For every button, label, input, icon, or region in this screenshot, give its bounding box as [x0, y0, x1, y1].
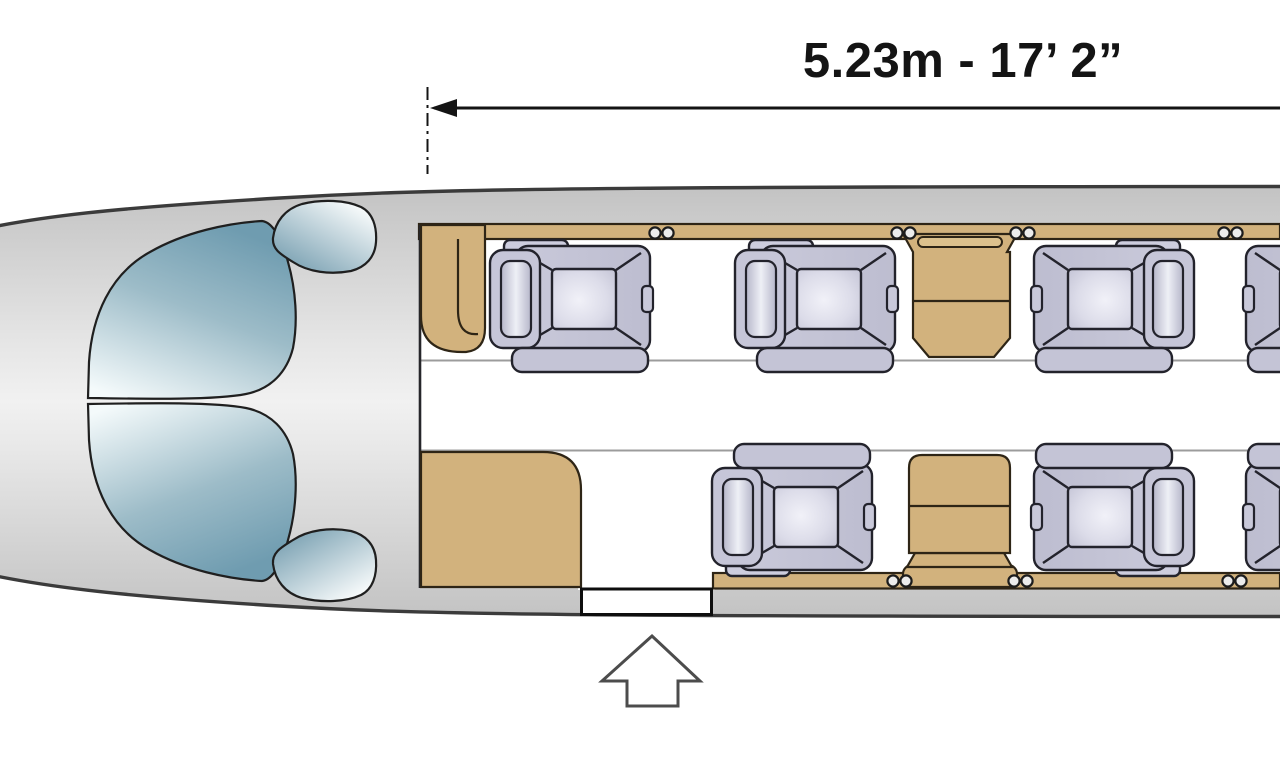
entry-arrow-icon: [602, 636, 700, 706]
table-top: [909, 455, 1010, 553]
passenger-seat: [735, 240, 898, 372]
passenger-seat: [712, 444, 875, 576]
forward-partition: [421, 225, 485, 352]
passenger-seat: [1243, 444, 1280, 576]
dimension-label: 5.23m - 17’ 2”: [803, 34, 1123, 88]
table-base: [907, 553, 1012, 567]
sidewall-cabinet: [903, 234, 1017, 357]
passenger-seat: [490, 240, 653, 372]
cabin-floorplan: 5.23m - 17’ 2”: [0, 0, 1280, 768]
conference-table: [903, 455, 1017, 587]
floorplan-scene: 5.23m - 17’ 2”: [0, 0, 1280, 768]
cabinet-lid: [918, 237, 1002, 247]
dimension-callout: 5.23m - 17’ 2”: [428, 34, 1280, 174]
passenger-seat: [1243, 240, 1280, 372]
passenger-seat: [1031, 240, 1194, 372]
table-foot: [903, 565, 1017, 587]
galley-cabinet: [421, 452, 581, 587]
entry-door: [582, 589, 712, 615]
sidewall-rail-top: [419, 224, 1280, 239]
door-threshold: [578, 571, 715, 590]
passenger-seat: [1031, 444, 1194, 576]
dimension-arrowhead: [430, 99, 457, 117]
